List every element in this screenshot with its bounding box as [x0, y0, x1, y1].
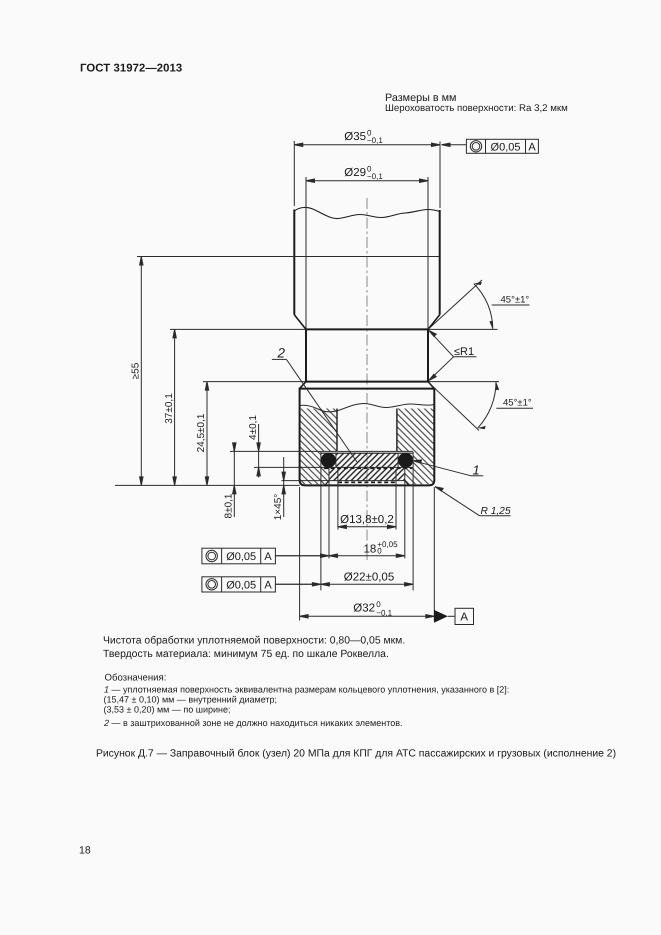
svg-text:37±0,1: 37±0,1: [164, 393, 175, 424]
svg-text:A: A: [264, 579, 272, 591]
svg-text:2 — в заштрихованной зоне не д: 2 — в заштрихованной зоне не должно нахо…: [103, 718, 403, 728]
svg-text:(3,53 ± 0,20) мм — по ширине;: (3,53 ± 0,20) мм — по ширине;: [104, 704, 231, 714]
svg-text:Ø0,05: Ø0,05: [491, 141, 521, 153]
svg-text:Ø0,05: Ø0,05: [226, 579, 256, 591]
svg-text:Рисунок Д.7 — Заправочный блок: Рисунок Д.7 — Заправочный блок (узел) 20…: [96, 748, 616, 759]
svg-text:Размеры в мм: Размеры в мм: [385, 92, 456, 104]
svg-text:18: 18: [79, 844, 91, 856]
svg-text:Обозначения:: Обозначения:: [105, 673, 167, 684]
svg-text:Ø35: Ø35: [344, 131, 366, 143]
svg-text:Ø13,8±0,2: Ø13,8±0,2: [340, 514, 394, 526]
svg-text:45°±1°: 45°±1°: [501, 294, 530, 305]
svg-text:≥55: ≥55: [131, 362, 142, 379]
svg-text:Шероховатость поверхности: Ra: Шероховатость поверхности: Ra 3,2 мкм: [385, 103, 568, 114]
svg-text:Ø0,05: Ø0,05: [226, 551, 256, 563]
svg-text:A: A: [528, 141, 536, 153]
svg-text:ГОСТ 31972—2013: ГОСТ 31972—2013: [80, 63, 182, 75]
svg-text:1: 1: [473, 462, 480, 477]
svg-text:−0,1: −0,1: [367, 136, 383, 145]
svg-text:18: 18: [364, 543, 377, 555]
svg-text:1 — уплотняемая поверхность эк: 1 — уплотняемая поверхность эквивалентна…: [104, 685, 509, 695]
svg-text:Ø22±0,05: Ø22±0,05: [344, 572, 394, 584]
svg-text:4±0,1: 4±0,1: [248, 415, 259, 440]
svg-text:≤R1: ≤R1: [454, 346, 474, 358]
svg-text:45°±1°: 45°±1°: [503, 397, 532, 408]
svg-text:−0,1: −0,1: [367, 172, 383, 181]
svg-text:Ø32: Ø32: [353, 603, 375, 615]
svg-text:Ø29: Ø29: [344, 167, 366, 179]
svg-text:(15,47 ± 0,10) мм — внутренний: (15,47 ± 0,10) мм — внутренний диаметр;: [104, 694, 278, 704]
svg-text:A: A: [264, 551, 272, 563]
svg-text:8±0,1: 8±0,1: [224, 493, 235, 518]
svg-text:2: 2: [277, 345, 286, 360]
svg-text:Твердость материала: минимум 7: Твердость материала: минимум 75 ед. по ш…: [103, 649, 389, 660]
svg-text:24,5±0,1: 24,5±0,1: [196, 413, 207, 452]
svg-text:Чистота обработки уплотняемой: Чистота обработки уплотняемой поверхност…: [103, 636, 405, 647]
svg-text:0: 0: [377, 546, 382, 555]
svg-text:−0,1: −0,1: [376, 608, 392, 617]
svg-text:R 1,25: R 1,25: [481, 506, 511, 517]
svg-text:A: A: [460, 611, 468, 623]
svg-text:1×45°: 1×45°: [273, 494, 284, 521]
